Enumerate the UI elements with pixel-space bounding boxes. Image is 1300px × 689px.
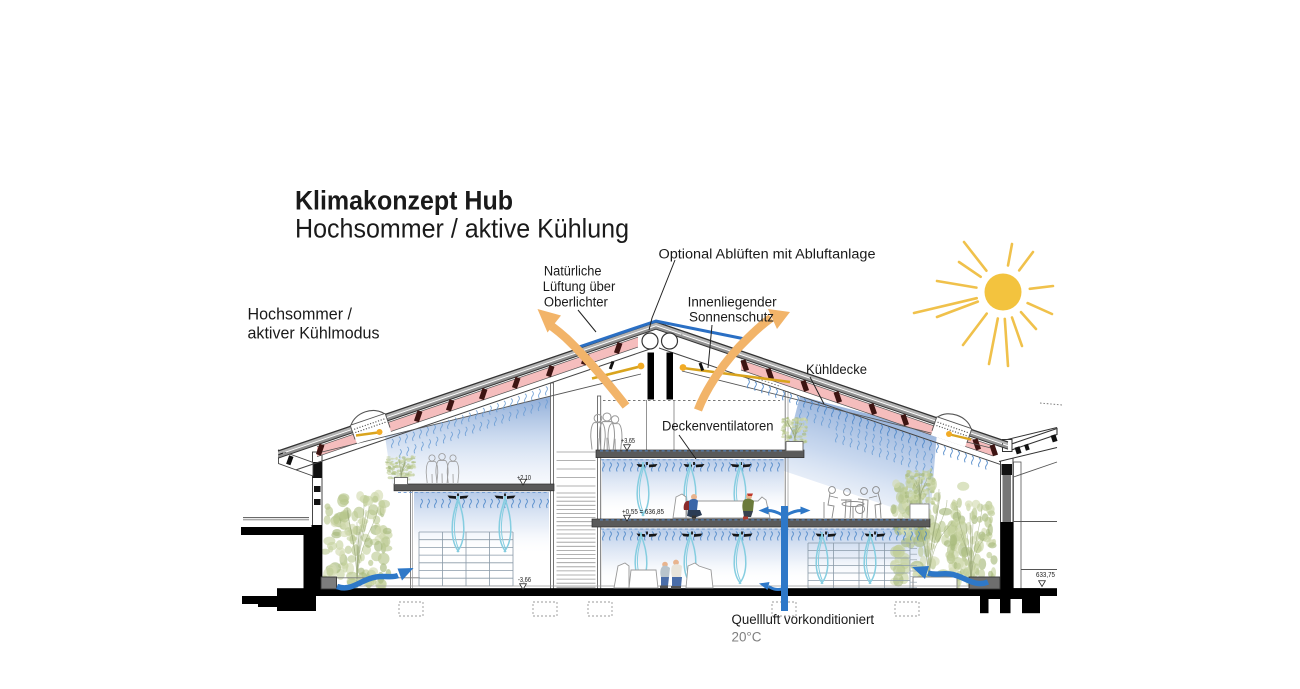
svg-text:Hochsommer / aktive Kühlung: Hochsommer / aktive Kühlung	[295, 214, 629, 244]
svg-text:Natürliche: Natürliche	[544, 264, 602, 280]
svg-text:Quellluft vorkonditioniert: Quellluft vorkonditioniert	[732, 612, 875, 628]
svg-text:633,75: 633,75	[1036, 572, 1055, 579]
svg-text:aktiver Kühlmodus: aktiver Kühlmodus	[248, 324, 380, 343]
svg-text:Hochsommer /: Hochsommer /	[248, 305, 353, 324]
svg-text:Lüftung über: Lüftung über	[543, 279, 616, 295]
svg-text:Klimakonzept Hub: Klimakonzept Hub	[295, 186, 513, 216]
svg-text:Oberlichter: Oberlichter	[544, 294, 608, 310]
svg-text:+3,65: +3,65	[621, 438, 635, 445]
svg-text:Sonnenschutz: Sonnenschutz	[689, 309, 774, 325]
svg-text:Innenliegender: Innenliegender	[688, 294, 777, 310]
svg-text:Optional Ablüften mit Abluftan: Optional Ablüften mit Abluftanlage	[659, 247, 876, 263]
svg-text:Kühldecke: Kühldecke	[806, 362, 867, 378]
svg-text:-3,66: -3,66	[518, 577, 531, 584]
svg-text:20°C: 20°C	[732, 630, 762, 646]
svg-text:Deckenventilatoren: Deckenventilatoren	[662, 419, 774, 435]
